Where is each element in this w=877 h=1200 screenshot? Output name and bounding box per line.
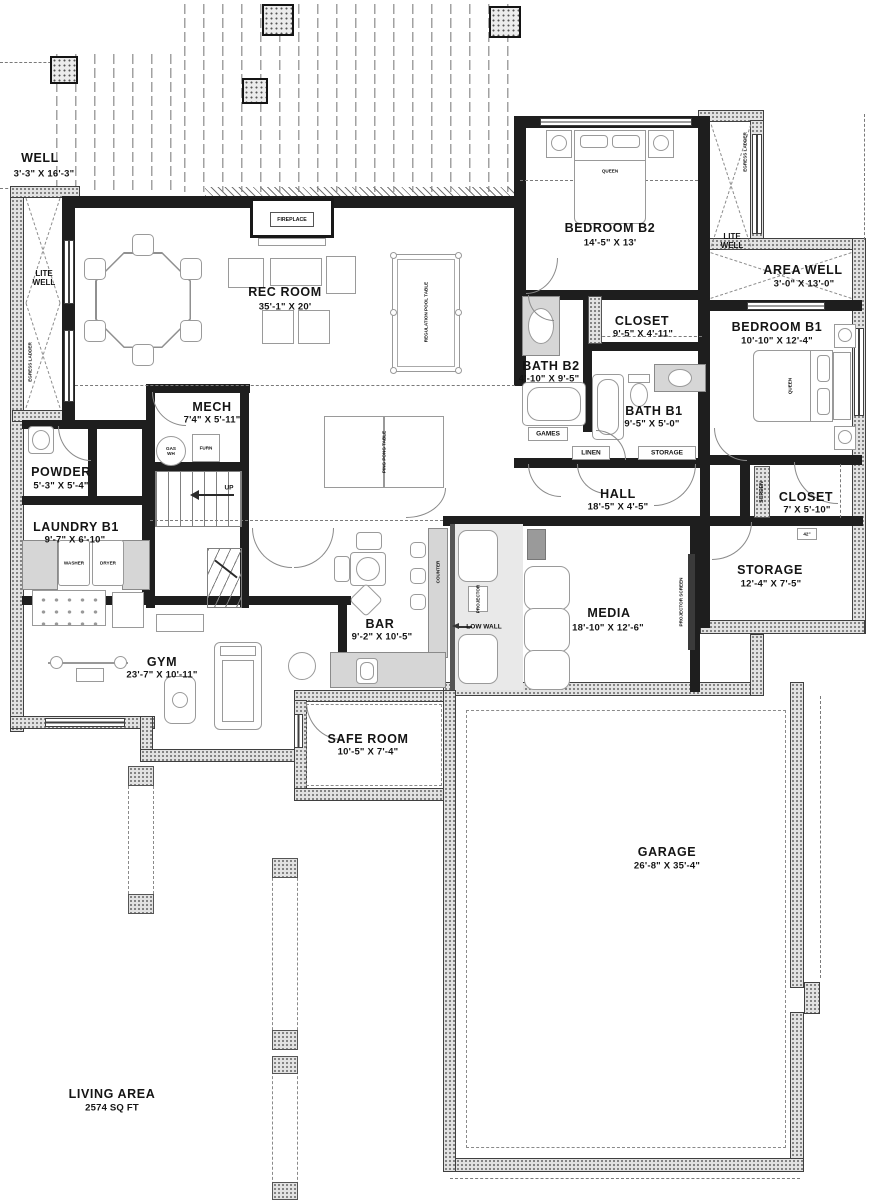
room-label-well: WELL (21, 151, 59, 165)
projector-screen-strip (688, 554, 695, 650)
room-label-hall: HALL (600, 487, 636, 501)
foundation-wall (10, 186, 24, 732)
room-dims-rec-room: 35'-1" X 20' (259, 302, 312, 313)
pillow (580, 135, 608, 148)
bar-stool (410, 568, 426, 584)
wall (698, 116, 710, 306)
laundry-counter (122, 540, 150, 590)
dryer-label: DRYER (100, 561, 116, 566)
recliner (458, 634, 498, 684)
footing-hatch (272, 1030, 298, 1050)
window (64, 240, 74, 304)
room-dims-laundry: 9'-7" X 6'-10" (45, 535, 106, 546)
bar-stool (410, 594, 426, 610)
stairs-arrow-line (198, 494, 234, 496)
room-label-storage: STORAGE (737, 563, 803, 577)
room-label-closet-b2: CLOSET (615, 314, 669, 328)
footing-strip (272, 1056, 298, 1200)
fireplace-label: FIREPLACE (277, 217, 306, 223)
pool-pocket (390, 252, 397, 259)
room-label-gym: GYM (147, 655, 177, 669)
room-dims-bedroom-b2: 14'-5" X 13' (584, 238, 637, 249)
sofa-cushion (524, 650, 570, 690)
wall (240, 384, 249, 472)
room-dims-powder: 5'-3" X 5'-4" (33, 481, 88, 492)
powder-sink-bowl (32, 430, 50, 450)
footing-hatch (272, 1056, 298, 1074)
footing-strip (272, 858, 298, 1050)
bar-chair (349, 583, 383, 617)
footing-hatch (272, 858, 298, 878)
weight-plate (114, 656, 127, 669)
stairs-up-label: UP (224, 485, 233, 492)
door-hall-bath-b1 (654, 464, 696, 506)
pool-pocket (455, 252, 462, 259)
wall (22, 496, 150, 505)
bed-fold-line (810, 350, 811, 422)
basement-floor-plan: FIREPLACE REGULATION POOL TABLE PING PON… (0, 0, 877, 1200)
room-dims-bedroom-b1: 10'-10" X 12'-4" (741, 336, 813, 347)
bench-42-label: 42" (803, 532, 810, 537)
room-label-bath-b1: BATH B1 (625, 404, 682, 418)
garage-inner-dashed (466, 710, 786, 1148)
sofa-cushion (524, 608, 570, 652)
window (540, 118, 692, 126)
bed-fold-line (574, 160, 646, 161)
window (45, 718, 125, 727)
egress-ladder-label: EGRESS LADDER (28, 342, 33, 382)
window (752, 134, 762, 234)
property-dashed (864, 114, 865, 240)
lite-well-label: LITE WELL (713, 232, 751, 250)
foundation-wall (294, 788, 456, 801)
room-label-garage: GARAGE (638, 845, 696, 859)
poker-table-top (97, 254, 190, 347)
pool-pocket (455, 367, 462, 374)
storage-shelf-label: STORAGE (651, 450, 683, 457)
bed-lamp (551, 135, 567, 151)
foundation-wall (443, 1158, 804, 1172)
room-label-mech: MECH (192, 400, 231, 414)
door-under-stair-closet-left (252, 528, 292, 568)
exterior-dashed (820, 696, 821, 978)
deck-edge-dashed (0, 62, 56, 63)
room-label-rec-room: REC ROOM (248, 285, 322, 299)
bar-counter (428, 528, 448, 658)
egress-ladder-label: EGRESS LADDER (743, 132, 748, 172)
room-label-powder: POWDER (31, 465, 91, 479)
room-dims-closet-b2: 9'-5" X 4'-11" (613, 329, 673, 340)
room-label-safe-room: SAFE ROOM (327, 732, 408, 746)
room-label-bath-b2: BATH B2 (522, 359, 579, 373)
deck-pier (242, 78, 268, 104)
wall (700, 458, 710, 628)
footing-hatch (272, 1182, 298, 1200)
foundation-wall (443, 690, 456, 1172)
room-dims-storage: 12'-4" X 7'-5" (741, 579, 802, 590)
armchair (326, 256, 356, 294)
room-dims-garage: 26'-8" X 35'-4" (634, 861, 700, 872)
door-hall-bath-b2 (528, 464, 561, 497)
room-dims-closet-b1: 7' X 5'-10" (783, 505, 830, 516)
deck-grid (184, 0, 518, 192)
stairs-arrow-head (190, 490, 199, 500)
projector-label: PROJECTOR (476, 585, 481, 614)
weight-plate (50, 656, 63, 669)
door-mech (152, 392, 186, 426)
sink (668, 369, 692, 387)
bathtub-inner (597, 379, 619, 435)
footing-hatch (128, 894, 154, 914)
ottoman (298, 310, 330, 344)
footing-hatch (128, 766, 154, 786)
bed-size-label: QUEEN (602, 169, 618, 174)
wall (740, 455, 750, 523)
window (294, 714, 303, 748)
treadmill-console (220, 646, 256, 656)
pool-pocket (390, 367, 397, 374)
laundry-counter (22, 540, 58, 590)
room-dims-well: 3'-3" X 16'-3" (14, 169, 75, 180)
wall (146, 462, 249, 471)
poker-chair (132, 344, 154, 366)
door-bedroom-b2 (526, 258, 558, 294)
wall (146, 596, 351, 605)
bed-lamp (653, 135, 669, 151)
toilet-tank (628, 374, 650, 383)
foundation-wall (140, 749, 305, 762)
door-media (406, 488, 446, 518)
ping-pong-label: PING PONG TABLE (382, 431, 387, 473)
bar-sink-bowl (360, 662, 374, 680)
washer-label: WASHER (64, 561, 84, 566)
bike-wheel (172, 692, 188, 708)
foundation-wall (790, 1012, 804, 1172)
ceiling-break-dashed (75, 385, 515, 386)
furnace-label: FURN (200, 446, 213, 451)
foundation-wall (750, 634, 764, 696)
headboard (833, 352, 851, 420)
water-heater-label: GAS WH (162, 446, 180, 456)
pool-pocket (455, 309, 462, 316)
room-label-area-well: AREA WELL (763, 263, 842, 277)
window (747, 302, 825, 310)
room-dims-bar: 9'-2" X 10'-5" (352, 632, 413, 643)
bar-chair (356, 532, 382, 550)
door-header (588, 296, 602, 344)
bar-chair (334, 556, 350, 582)
screen-label: SCREEN (759, 481, 765, 503)
room-dims-area-well: 3'-0" X 13'-0" (774, 279, 835, 290)
room-label-bar: BAR (366, 617, 395, 631)
room-label-media: MEDIA (587, 606, 630, 620)
sofa-cushion (524, 566, 570, 610)
window (64, 330, 74, 402)
living-area-label: LIVING AREA (69, 1087, 156, 1101)
bed-lamp (838, 430, 852, 444)
wall-clock (288, 652, 316, 680)
low-wall-label: LOW WALL (466, 624, 501, 631)
deck-pier (50, 56, 78, 84)
exterior-dashed (450, 1178, 800, 1179)
pillow (612, 135, 640, 148)
footing-strip (128, 766, 154, 914)
exercise-mat (156, 614, 204, 632)
poker-chair (84, 258, 106, 280)
foundation-wall (700, 620, 865, 634)
pillow (817, 388, 830, 415)
armchair (228, 258, 264, 288)
barbell-bench (76, 668, 104, 682)
foundation-wall (294, 690, 456, 702)
games-label: GAMES (536, 431, 560, 438)
ottoman (262, 310, 294, 344)
room-label-bedroom-b1: BEDROOM B1 (732, 320, 823, 334)
room-dims-bath-b2: 4'-10" X 9'-5" (519, 374, 580, 385)
room-dims-media: 18'-10" X 12'-6" (572, 623, 644, 634)
treadmill-belt (222, 660, 254, 722)
low-wall-arrow-head (452, 623, 459, 629)
gym-bench (112, 592, 144, 628)
lite-well-label: LITE WELL (25, 269, 63, 287)
poker-chair (180, 258, 202, 280)
ledger-ticks (205, 187, 520, 196)
projector-screen-label: PROJECTOR SCREEN (679, 578, 684, 627)
poker-chair (84, 320, 106, 342)
pool-pocket (390, 309, 397, 316)
bar-back-counter (330, 652, 446, 688)
living-area-value: 2574 SQ FT (85, 1103, 139, 1114)
pillow (817, 355, 830, 382)
room-dims-safe-room: 10'-5" X 7'-4" (338, 747, 399, 758)
batht双ub-inner (527, 387, 581, 421)
bed-size-label: QUEEN (788, 378, 793, 394)
bar-counter-label: COUNTER (436, 561, 441, 584)
room-label-bedroom-b2: BEDROOM B2 (565, 221, 656, 235)
pool-table-label: REGULATION POOL TABLE (424, 282, 429, 342)
room-dims-bath-b1: 9'-5" X 5'-0" (624, 419, 679, 430)
bed-lamp (838, 328, 852, 342)
room-dims-mech: 7'4" X 5'-11" (184, 415, 241, 426)
door-under-stair-closet-right (294, 528, 334, 568)
poker-table (95, 252, 191, 348)
room-label-laundry: LAUNDRY B1 (33, 520, 119, 534)
deck-pier (489, 6, 521, 38)
poker-chair (180, 320, 202, 342)
bar-stool (410, 542, 426, 558)
deck-pier (262, 4, 294, 36)
stairs-winder (207, 548, 242, 608)
door-powder (58, 426, 91, 461)
foundation-wall (790, 682, 804, 988)
sofa (270, 258, 322, 286)
weight-rack (32, 590, 106, 626)
foundation-wall (804, 982, 820, 1014)
wall (583, 342, 710, 351)
poker-chair (132, 234, 154, 256)
room-label-closet-b1: CLOSET (779, 490, 833, 504)
closet-rod-dashed (840, 464, 841, 518)
recliner (458, 530, 498, 582)
room-dims-gym: 23'-7" X 10'-11" (126, 670, 197, 681)
door-storage (712, 522, 752, 560)
media-equipment (527, 529, 546, 560)
wall (338, 600, 347, 658)
fireplace-hearth (258, 238, 326, 246)
bar-table-top (356, 557, 380, 581)
room-dims-hall: 18'-5" X 4'-5" (588, 502, 649, 513)
media-low-wall (450, 524, 455, 690)
